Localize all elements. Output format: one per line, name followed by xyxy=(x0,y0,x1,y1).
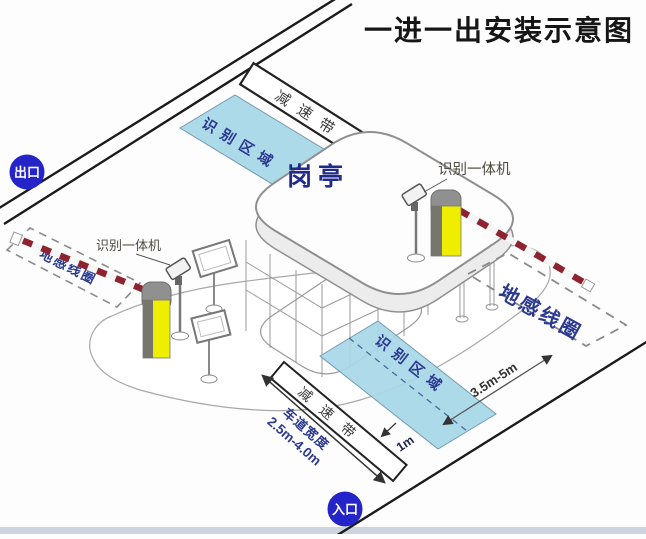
diagram-canvas: 减速带 识别区域 地感线圈 xyxy=(0,0,646,534)
camera-right-label: 识别一体机 xyxy=(438,161,511,178)
entrance-badge-label: 入口 xyxy=(332,502,358,517)
barrier-machine-right-side xyxy=(431,206,442,256)
entrance-badge: 入口 xyxy=(328,492,363,527)
camera-left-label: 识别一体机 xyxy=(96,238,161,253)
installation-diagram: 减速带 识别区域 地感线圈 xyxy=(0,0,646,534)
camera-right-base xyxy=(408,254,425,262)
barrier-machine-left-side xyxy=(143,300,153,358)
camera-left-base xyxy=(172,332,189,340)
exit-badge: 出口 xyxy=(10,155,45,190)
diagram-title: 一进一出安装示意图 xyxy=(364,14,634,46)
booth-label: 岗亭 xyxy=(287,162,349,191)
exit-badge-label: 出口 xyxy=(14,165,40,180)
bottom-edge-strip xyxy=(0,527,646,534)
sign-b-base xyxy=(201,375,217,383)
